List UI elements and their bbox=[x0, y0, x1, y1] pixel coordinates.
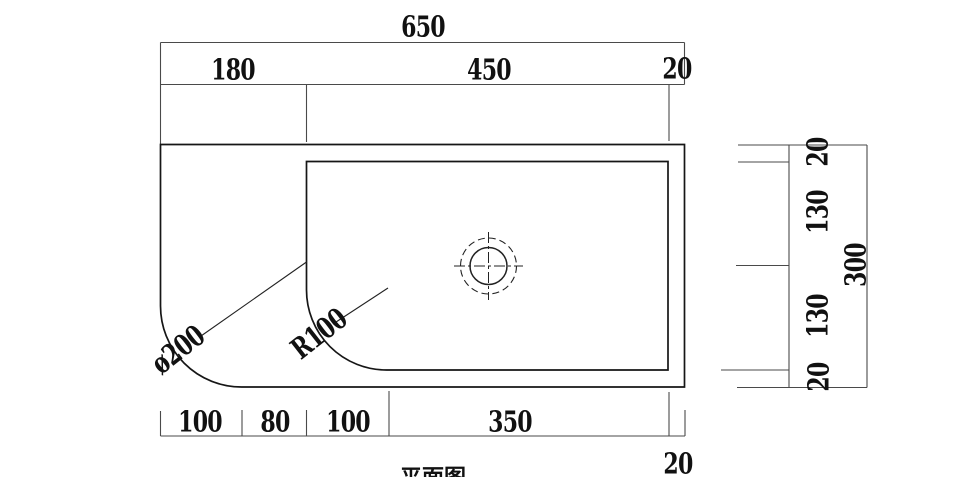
dim-bottom-100b: 100 bbox=[326, 408, 370, 437]
dim-side-20-bottom: 20 bbox=[805, 362, 834, 391]
dim-side-20-top: 20 bbox=[804, 137, 833, 166]
leader-diameter-200 bbox=[201, 262, 307, 336]
dim-side-total-300: 300 bbox=[842, 243, 871, 287]
dim-top-180: 180 bbox=[211, 56, 255, 85]
dim-bottom-350: 350 bbox=[488, 408, 532, 437]
dim-top-450: 450 bbox=[467, 56, 511, 85]
dim-bottom-100a: 100 bbox=[178, 408, 222, 437]
dim-bottom-offset-20: 20 bbox=[663, 450, 692, 477]
drawing-title: 平面图 bbox=[400, 467, 466, 477]
dim-side-130-top: 130 bbox=[804, 190, 833, 234]
dim-bottom-80: 80 bbox=[260, 408, 289, 437]
basin-outer-outline bbox=[161, 145, 685, 388]
dimension-lines bbox=[161, 43, 868, 437]
leader-lines bbox=[201, 262, 388, 336]
drain-hole bbox=[454, 232, 523, 300]
basin-outlines bbox=[161, 145, 685, 388]
dim-top-20: 20 bbox=[662, 55, 691, 84]
dim-top-total: 650 bbox=[401, 13, 445, 42]
basin-inner-outline bbox=[307, 162, 669, 371]
dim-side-130-bottom: 130 bbox=[804, 294, 833, 338]
cad-plan-view-sheet: 650 180 450 20 100 80 100 350 20 20 130 … bbox=[0, 0, 971, 477]
